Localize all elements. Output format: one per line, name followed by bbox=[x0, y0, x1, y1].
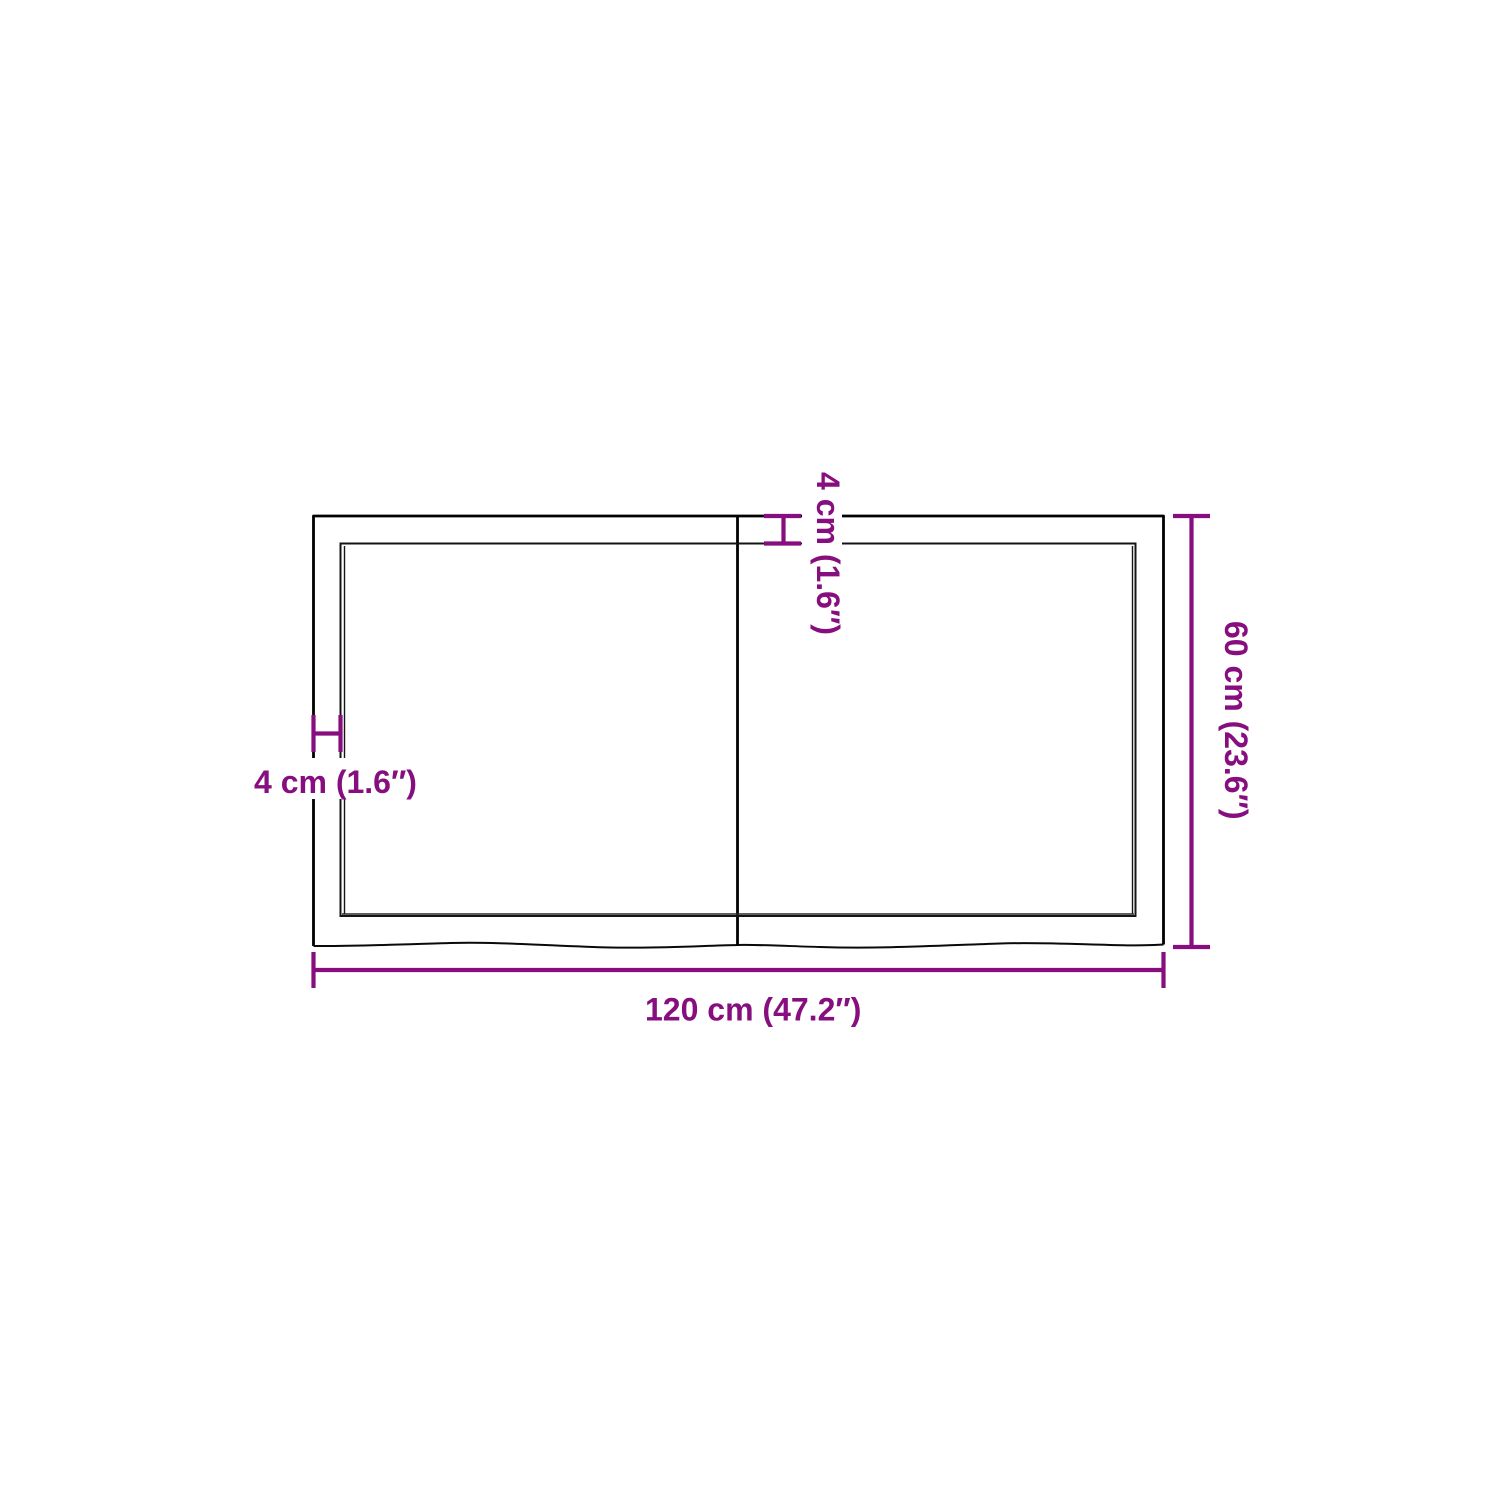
svg-text:120 cm (47.2″): 120 cm (47.2″) bbox=[645, 992, 861, 1028]
svg-text:4 cm (1.6″): 4 cm (1.6″) bbox=[810, 472, 846, 635]
svg-text:4 cm (1.6″): 4 cm (1.6″) bbox=[254, 764, 417, 800]
svg-text:60 cm (23.6″): 60 cm (23.6″) bbox=[1218, 621, 1254, 820]
